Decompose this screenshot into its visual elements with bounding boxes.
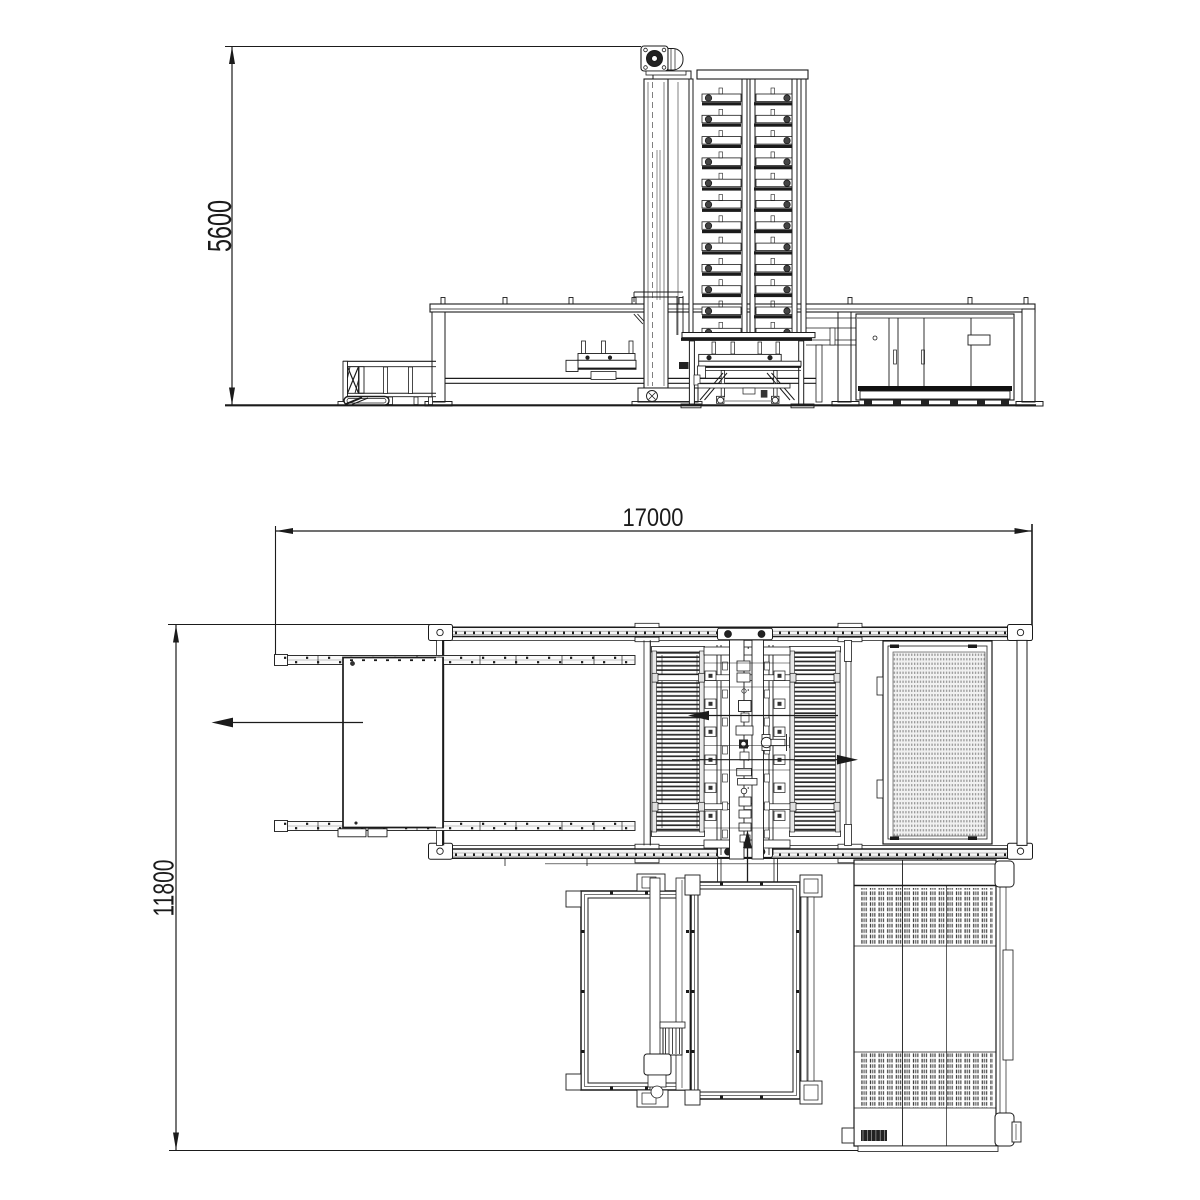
svg-text:5600: 5600: [201, 200, 238, 252]
svg-text:17000: 17000: [623, 504, 684, 532]
svg-text:11800: 11800: [149, 860, 181, 917]
